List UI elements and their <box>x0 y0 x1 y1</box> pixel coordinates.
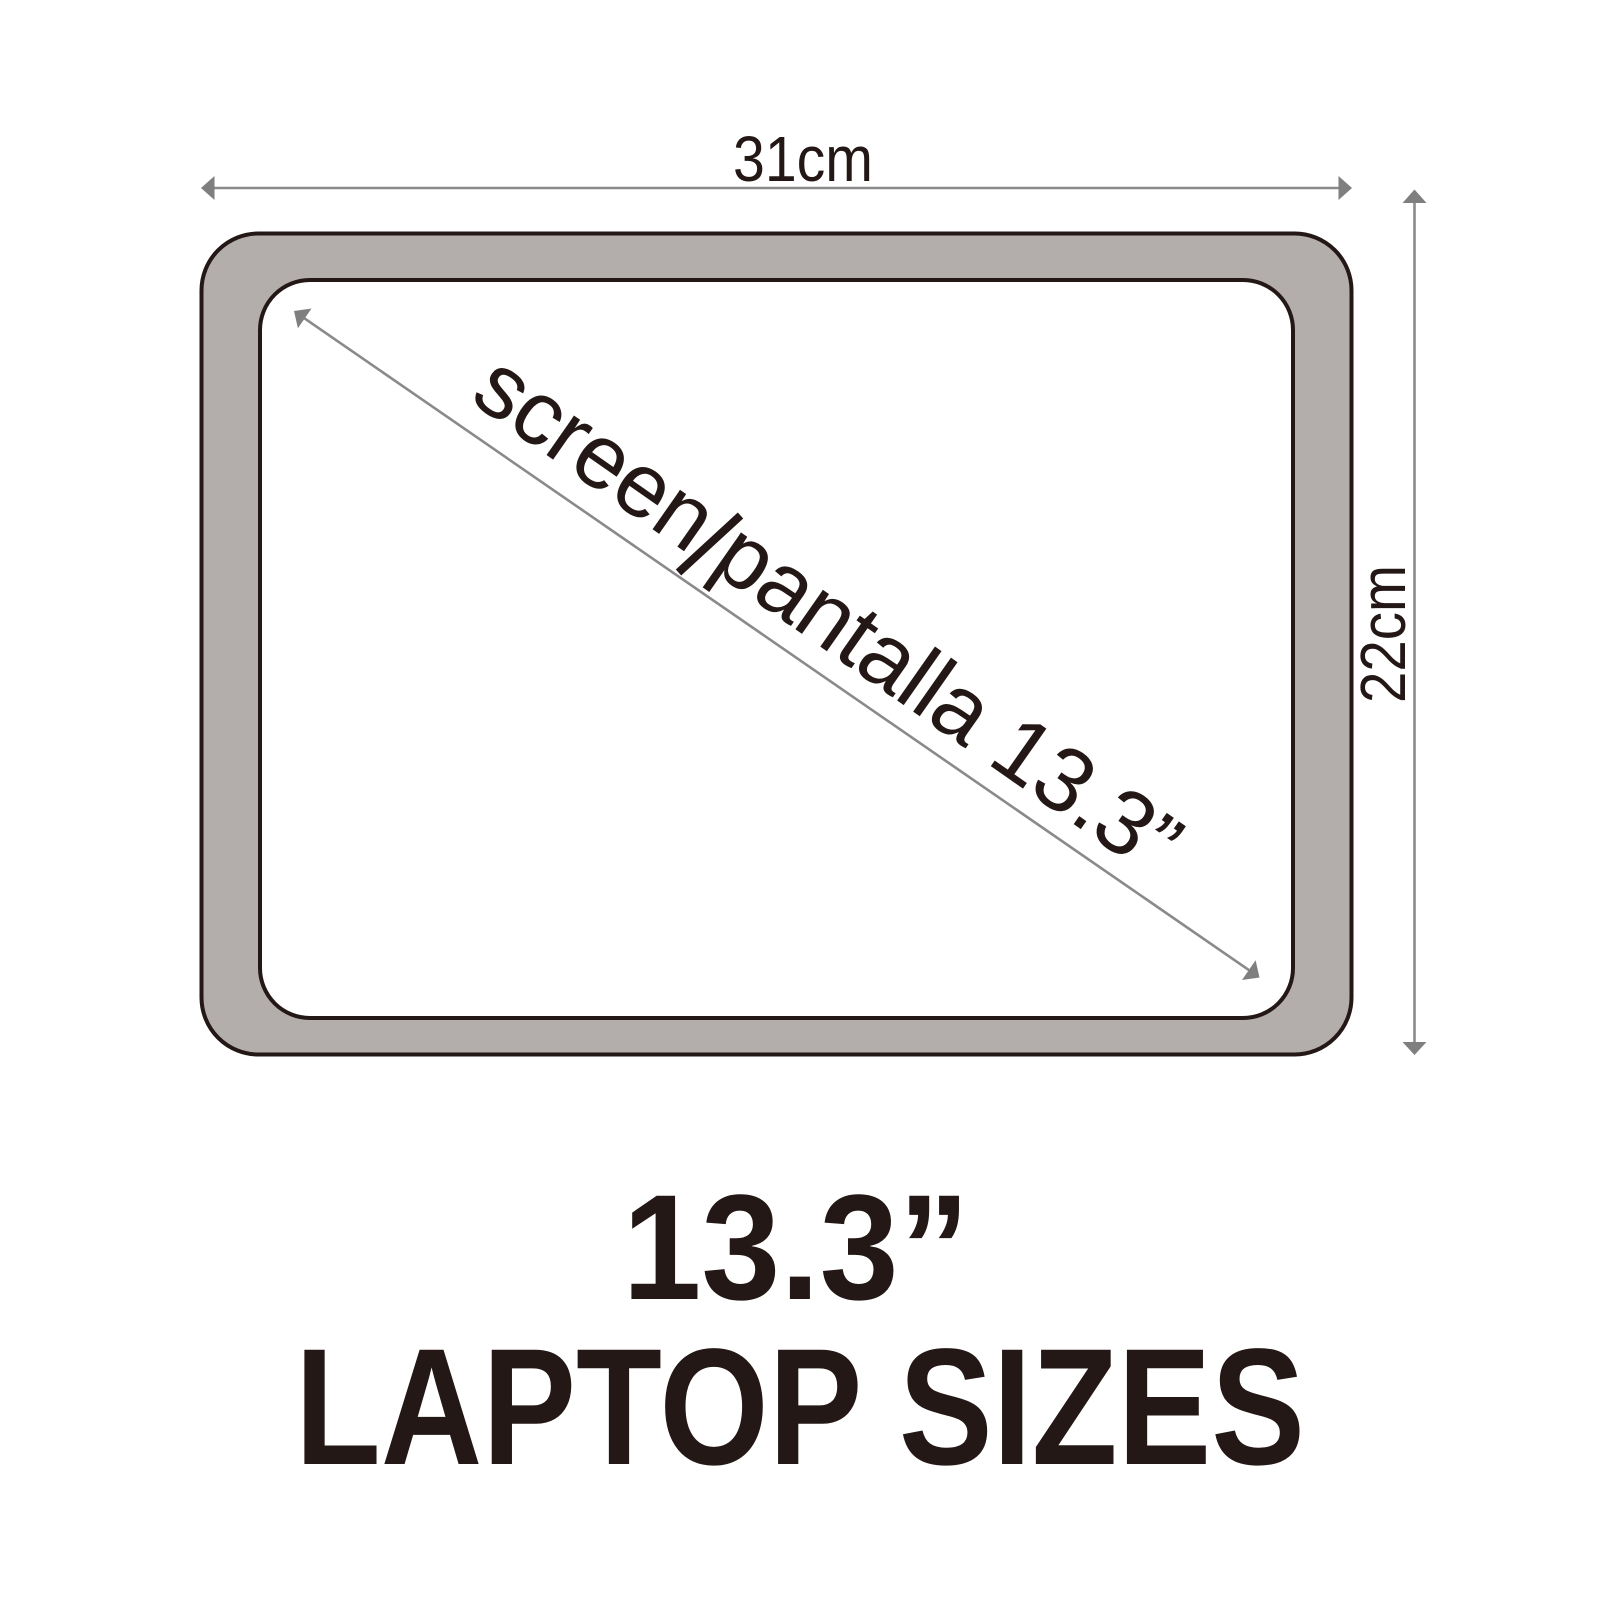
svg-text:31cm: 31cm <box>733 123 873 195</box>
svg-text:13.3”: 13.3” <box>623 1163 970 1331</box>
svg-text:22cm: 22cm <box>1347 565 1419 703</box>
svg-text:LAPTOP SIZES: LAPTOP SIZES <box>295 1315 1305 1500</box>
